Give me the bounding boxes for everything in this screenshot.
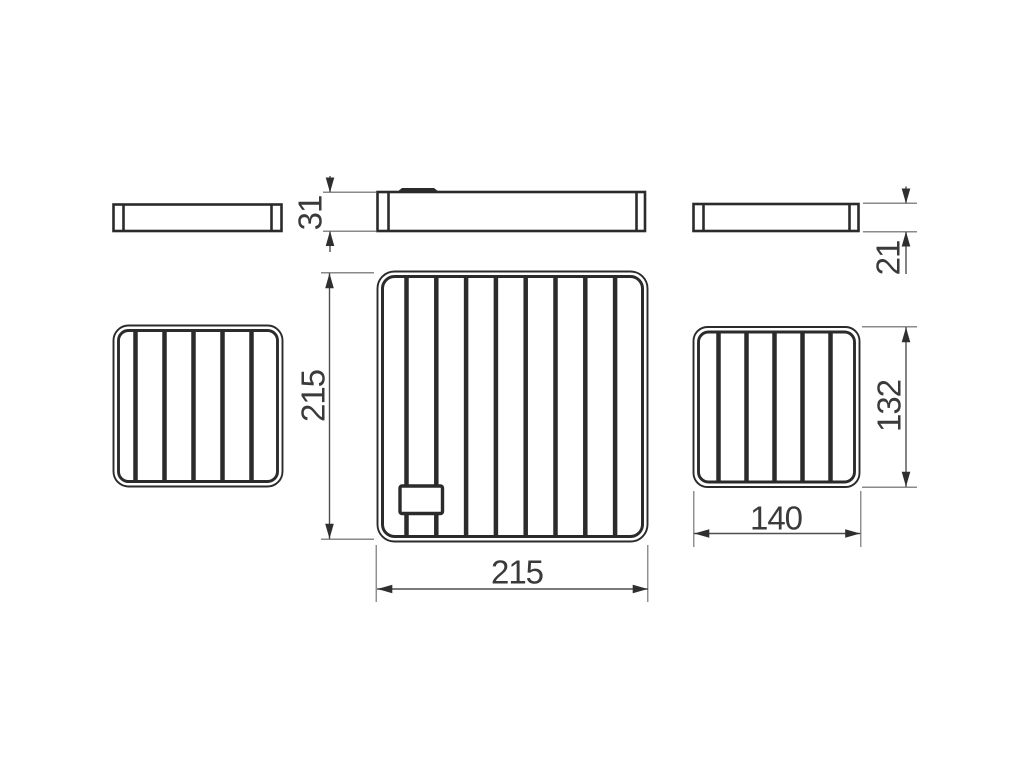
plan-view-right-small xyxy=(694,327,860,487)
dim-label-height-31: 31 xyxy=(292,196,329,231)
arrow-up-icon xyxy=(325,273,334,288)
dimension-lines xyxy=(330,176,907,589)
shelf-profile-outline xyxy=(694,204,859,231)
side-view-right-small xyxy=(694,204,859,231)
dim-label-depth-132: 132 xyxy=(871,380,908,432)
grid-frame-outer xyxy=(114,326,283,487)
arrow-down-icon xyxy=(325,524,334,539)
arrow-down-icon xyxy=(326,178,335,193)
arrow-right-icon xyxy=(845,529,860,538)
plan-view-center-large xyxy=(378,272,648,542)
mounting-tab xyxy=(397,188,439,192)
side-view-left-small xyxy=(114,205,282,232)
arrow-up-icon xyxy=(326,231,335,246)
arrow-left-icon xyxy=(377,585,392,594)
drawing-canvas: 31 21 215 215 132 140 xyxy=(0,0,1024,768)
dim-label-width-140: 140 xyxy=(750,500,803,537)
shelf-profile-outline xyxy=(378,192,646,231)
technical-drawing: 31 21 215 215 132 140 xyxy=(0,0,1024,768)
arrow-down-icon xyxy=(902,472,911,487)
dim-label-depth-215: 215 xyxy=(295,370,332,422)
dim-label-height-21: 21 xyxy=(870,241,907,276)
plan-view-left-small xyxy=(114,326,283,487)
arrow-up-icon xyxy=(902,327,911,342)
side-view-center-large xyxy=(378,188,646,231)
shelf-profile-outline xyxy=(114,205,282,232)
dim-label-width-215: 215 xyxy=(491,554,543,591)
extension-lines xyxy=(321,192,917,602)
dimension-arrows xyxy=(325,178,910,594)
plan-views xyxy=(114,272,860,542)
arrow-right-icon xyxy=(633,585,648,594)
bracket-plate xyxy=(400,486,443,514)
side-views xyxy=(114,188,859,231)
arrow-down-icon xyxy=(902,189,911,204)
arrow-left-icon xyxy=(694,529,709,538)
